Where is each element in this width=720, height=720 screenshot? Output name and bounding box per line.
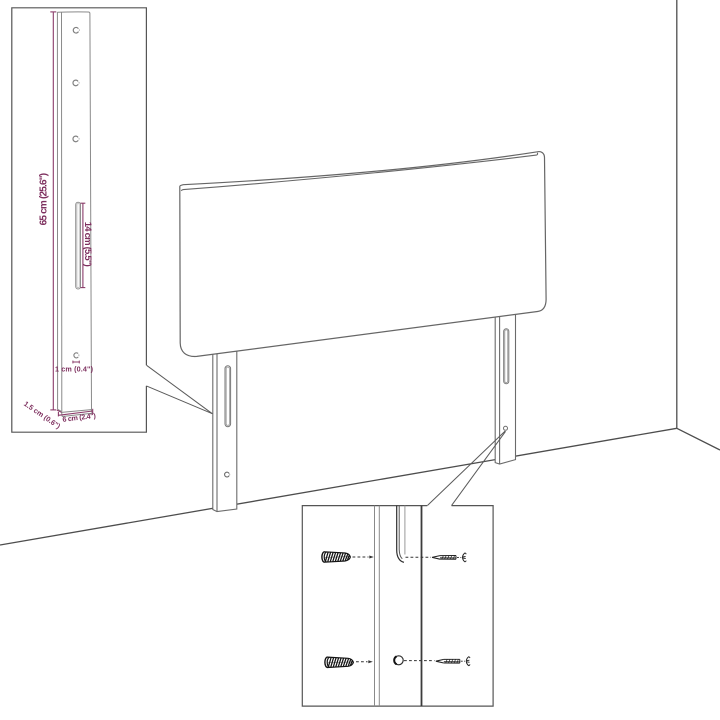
svg-text:1 cm (0.4"): 1 cm (0.4") xyxy=(55,364,94,373)
svg-text:14 cm (5.5"): 14 cm (5.5") xyxy=(82,222,93,267)
svg-text:65 cm (25.6"): 65 cm (25.6") xyxy=(38,173,49,226)
